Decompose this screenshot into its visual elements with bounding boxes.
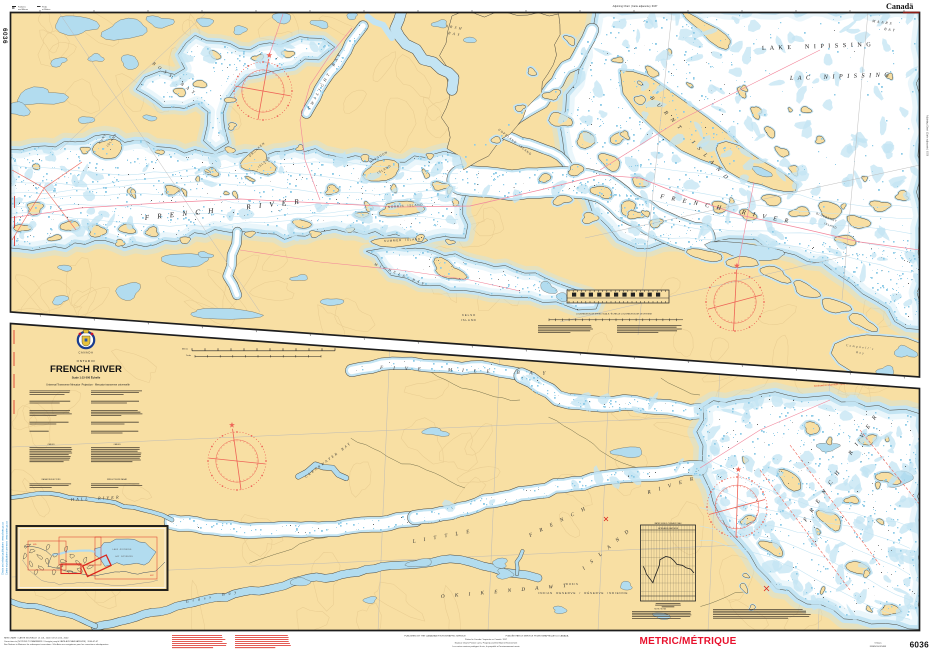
svg-text:RÉFLECTEURS RADAR: RÉFLECTEURS RADAR xyxy=(107,478,128,481)
svg-text:Yards: Yards xyxy=(186,355,191,357)
svg-text:CABLES: CABLES xyxy=(47,443,55,446)
svg-text:PUBLIÉE PAR LE SERVICE HYDROGR: PUBLIÉE PAR LE SERVICE HYDROGRAPHIQUE DU… xyxy=(506,635,569,638)
svg-text:LOUGHBOROUGH SPEED SCALE / ÉCH: LOUGHBOROUGH SPEED SCALE / ÉCHELLE LOUGH… xyxy=(576,313,652,316)
svg-text:6035: 6035 xyxy=(33,544,37,546)
svg-text:WATER LEVELS / NIVEAUX D'EAU: WATER LEVELS / NIVEAUX D'EAU xyxy=(654,522,682,525)
svg-text:RADAR REFLECTORS: RADAR REFLECTORS xyxy=(42,478,62,481)
svg-text:FRENCH RIVER: FRENCH RIVER xyxy=(870,646,887,648)
svg-text:KELSO: KELSO xyxy=(462,313,476,317)
svg-text:NOTE / NOTA: NOTE / NOTA xyxy=(654,608,666,611)
svg-text:LAKE NIPISSING: LAKE NIPISSING xyxy=(112,548,131,551)
svg-text:Nautical Charts Protect Lives,: Nautical Charts Protect Lives, Property … xyxy=(455,642,518,645)
svg-text:6037: 6037 xyxy=(150,575,154,577)
svg-text:6036: 6036 xyxy=(910,641,930,650)
svg-text:Adjoining Chart (Carte adjace: Adjoining Chart (Carte adjacente) 6036 xyxy=(926,115,929,157)
svg-text:Charts and related publication: Charts and related publications www.char… xyxy=(2,521,5,575)
svg-text:ISLAND: ISLAND xyxy=(461,318,477,322)
svg-text:Corrections to (NOTICES TO MAR: Corrections to (NOTICES TO MARINERS / Co… xyxy=(4,640,99,643)
svg-text:et Mètres: et Mètres xyxy=(42,8,50,11)
svg-text:PUBLISHED BY THE CANADIAN HYDR: PUBLISHED BY THE CANADIAN HYDROGRAPHIC S… xyxy=(404,635,466,638)
svg-text:NEW CHART / CARTE NOUVELLE 21: NEW CHART / CARTE NOUVELLE 21 JUL. 2000 … xyxy=(4,637,69,640)
svg-text:INDIAN RESERVE / RÉSERVE I: INDIAN RESERVE / RÉSERVE INDIENNE xyxy=(538,590,628,595)
svg-text:DOKIS: DOKIS xyxy=(566,582,579,586)
svg-text:6036: 6036 xyxy=(1,28,8,44)
svg-text:Printed in Canada / Imprimée a: Printed in Canada / Imprimée au Canada 1… xyxy=(465,638,508,641)
svg-text:CANADA: CANADA xyxy=(78,351,93,355)
svg-text:LAC NIPISSING: LAC NIPISSING xyxy=(115,555,133,558)
svg-text:Les cartes marines protègent l: Les cartes marines protègent la vie, la … xyxy=(452,645,520,648)
svg-text:Universal Transverse Mercator: Universal Transverse Mercator Projection… xyxy=(46,384,130,387)
svg-text:Canadä: Canadä xyxy=(886,2,913,11)
svg-text:ONTARIO: ONTARIO xyxy=(77,359,96,363)
svg-text:Ottawa: Ottawa xyxy=(875,642,883,645)
svg-text:FRENCH RIVER: FRENCH RIVER xyxy=(50,364,122,375)
svg-text:See Notices to Mariners for su: See Notices to Mariners for subsequent c… xyxy=(4,643,108,646)
svg-text:CÂBLES: CÂBLES xyxy=(113,443,121,446)
svg-text:and Metres: and Metres xyxy=(18,8,28,11)
svg-text:Adjoining Chart (Carte adjace: Adjoining Chart (Carte adjacente) 6037 xyxy=(613,5,658,8)
svg-text:Metres: Metres xyxy=(182,348,188,351)
svg-text:METRIC/MÉTRIQUE: METRIC/MÉTRIQUE xyxy=(640,634,737,647)
svg-text:Cartes et publications connexe: Cartes et publications connexes www.cart… xyxy=(6,521,9,575)
